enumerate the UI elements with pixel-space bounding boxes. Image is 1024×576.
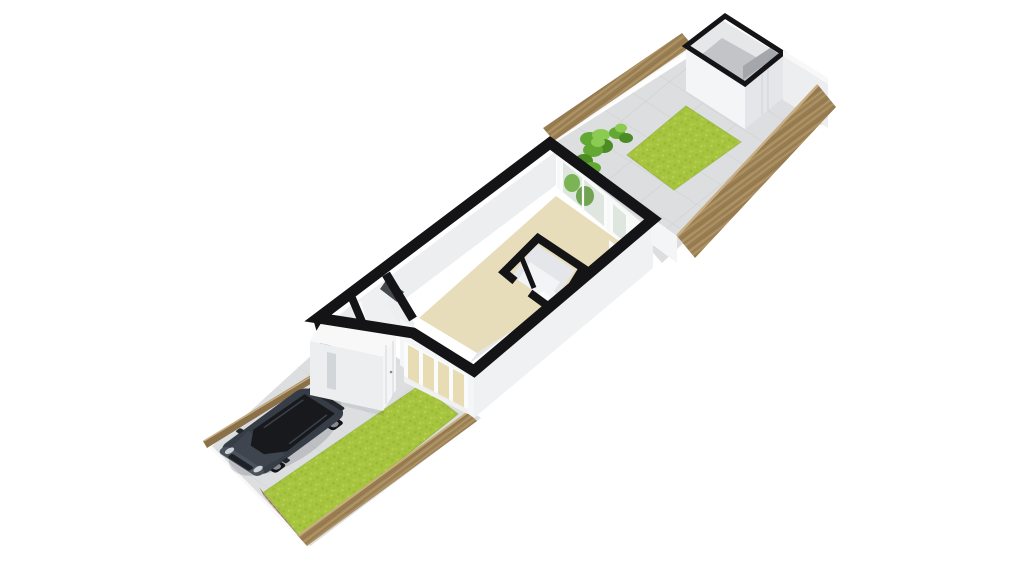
porch-slit-window xyxy=(327,352,336,390)
shrub-leaf xyxy=(615,124,627,133)
shrub-leaf xyxy=(619,133,633,143)
plant-through-glass xyxy=(564,174,580,192)
shrub-leaf xyxy=(591,137,605,147)
plant-through-glass xyxy=(576,186,594,206)
front-door-handle xyxy=(390,371,393,374)
floorplan-canvas xyxy=(0,0,1024,576)
floorplan-render xyxy=(0,0,1024,576)
